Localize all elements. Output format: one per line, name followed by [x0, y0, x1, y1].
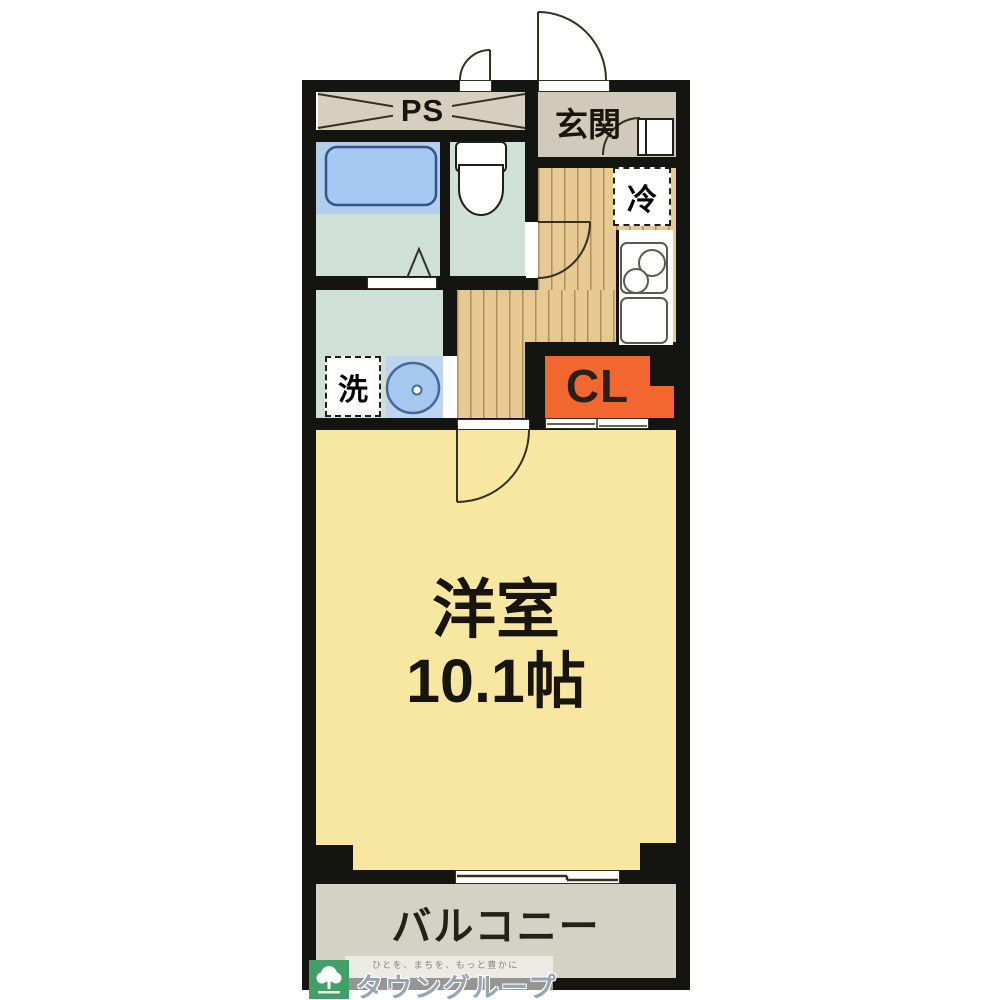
main-room-label: 洋室 10.1帖 — [316, 560, 676, 730]
ps-label: PS — [393, 93, 452, 129]
logo-mark — [309, 960, 349, 999]
washing-machine-space: 洗 — [325, 356, 381, 417]
wall-pillar-left — [307, 845, 353, 872]
balcony-label: バルコニー — [316, 898, 676, 948]
closet-sliding-door — [545, 418, 649, 429]
closet-label: CL — [545, 356, 650, 416]
door-arc-top-small — [460, 50, 490, 80]
entrance-door-threshold — [538, 80, 610, 92]
hallway-floor-lower — [457, 345, 525, 418]
main-room-size: 10.1帖 — [406, 647, 586, 715]
entrance-door-arc — [538, 12, 606, 80]
bathtub-band — [316, 142, 440, 214]
washroom-door-opening — [443, 356, 457, 418]
wall — [443, 290, 457, 356]
toilet-room-area — [450, 142, 525, 276]
closet-area-extension — [650, 386, 674, 418]
refrigerator-space: 冷 — [613, 167, 671, 226]
washing-machine-label: 洗 — [338, 365, 368, 409]
ps-label-wrap: PS — [318, 92, 527, 130]
tree-icon — [312, 963, 346, 997]
entrance-cabinet-line — [645, 120, 647, 154]
refrigerator-label: 冷 — [627, 175, 657, 219]
washbasin-unit — [386, 356, 443, 418]
wall — [316, 130, 538, 142]
wall-pillar-right — [640, 843, 676, 872]
kitchen-counter — [616, 230, 673, 345]
wall — [302, 80, 690, 92]
balcony-window — [455, 870, 620, 884]
logo-name: タウングループ — [356, 966, 557, 1000]
entrance-label: 玄関 — [540, 100, 636, 144]
floorplan: 冷 洗 — [0, 0, 999, 1000]
door-threshold-top-small — [459, 80, 492, 92]
entrance-cabinet — [637, 118, 674, 156]
main-room-name: 洋室 — [432, 575, 560, 647]
wall — [676, 80, 690, 990]
toilet-door-opening — [526, 222, 538, 278]
room-door-threshold — [457, 419, 530, 430]
wall — [440, 142, 450, 276]
bathroom-door-threshold — [367, 277, 437, 289]
